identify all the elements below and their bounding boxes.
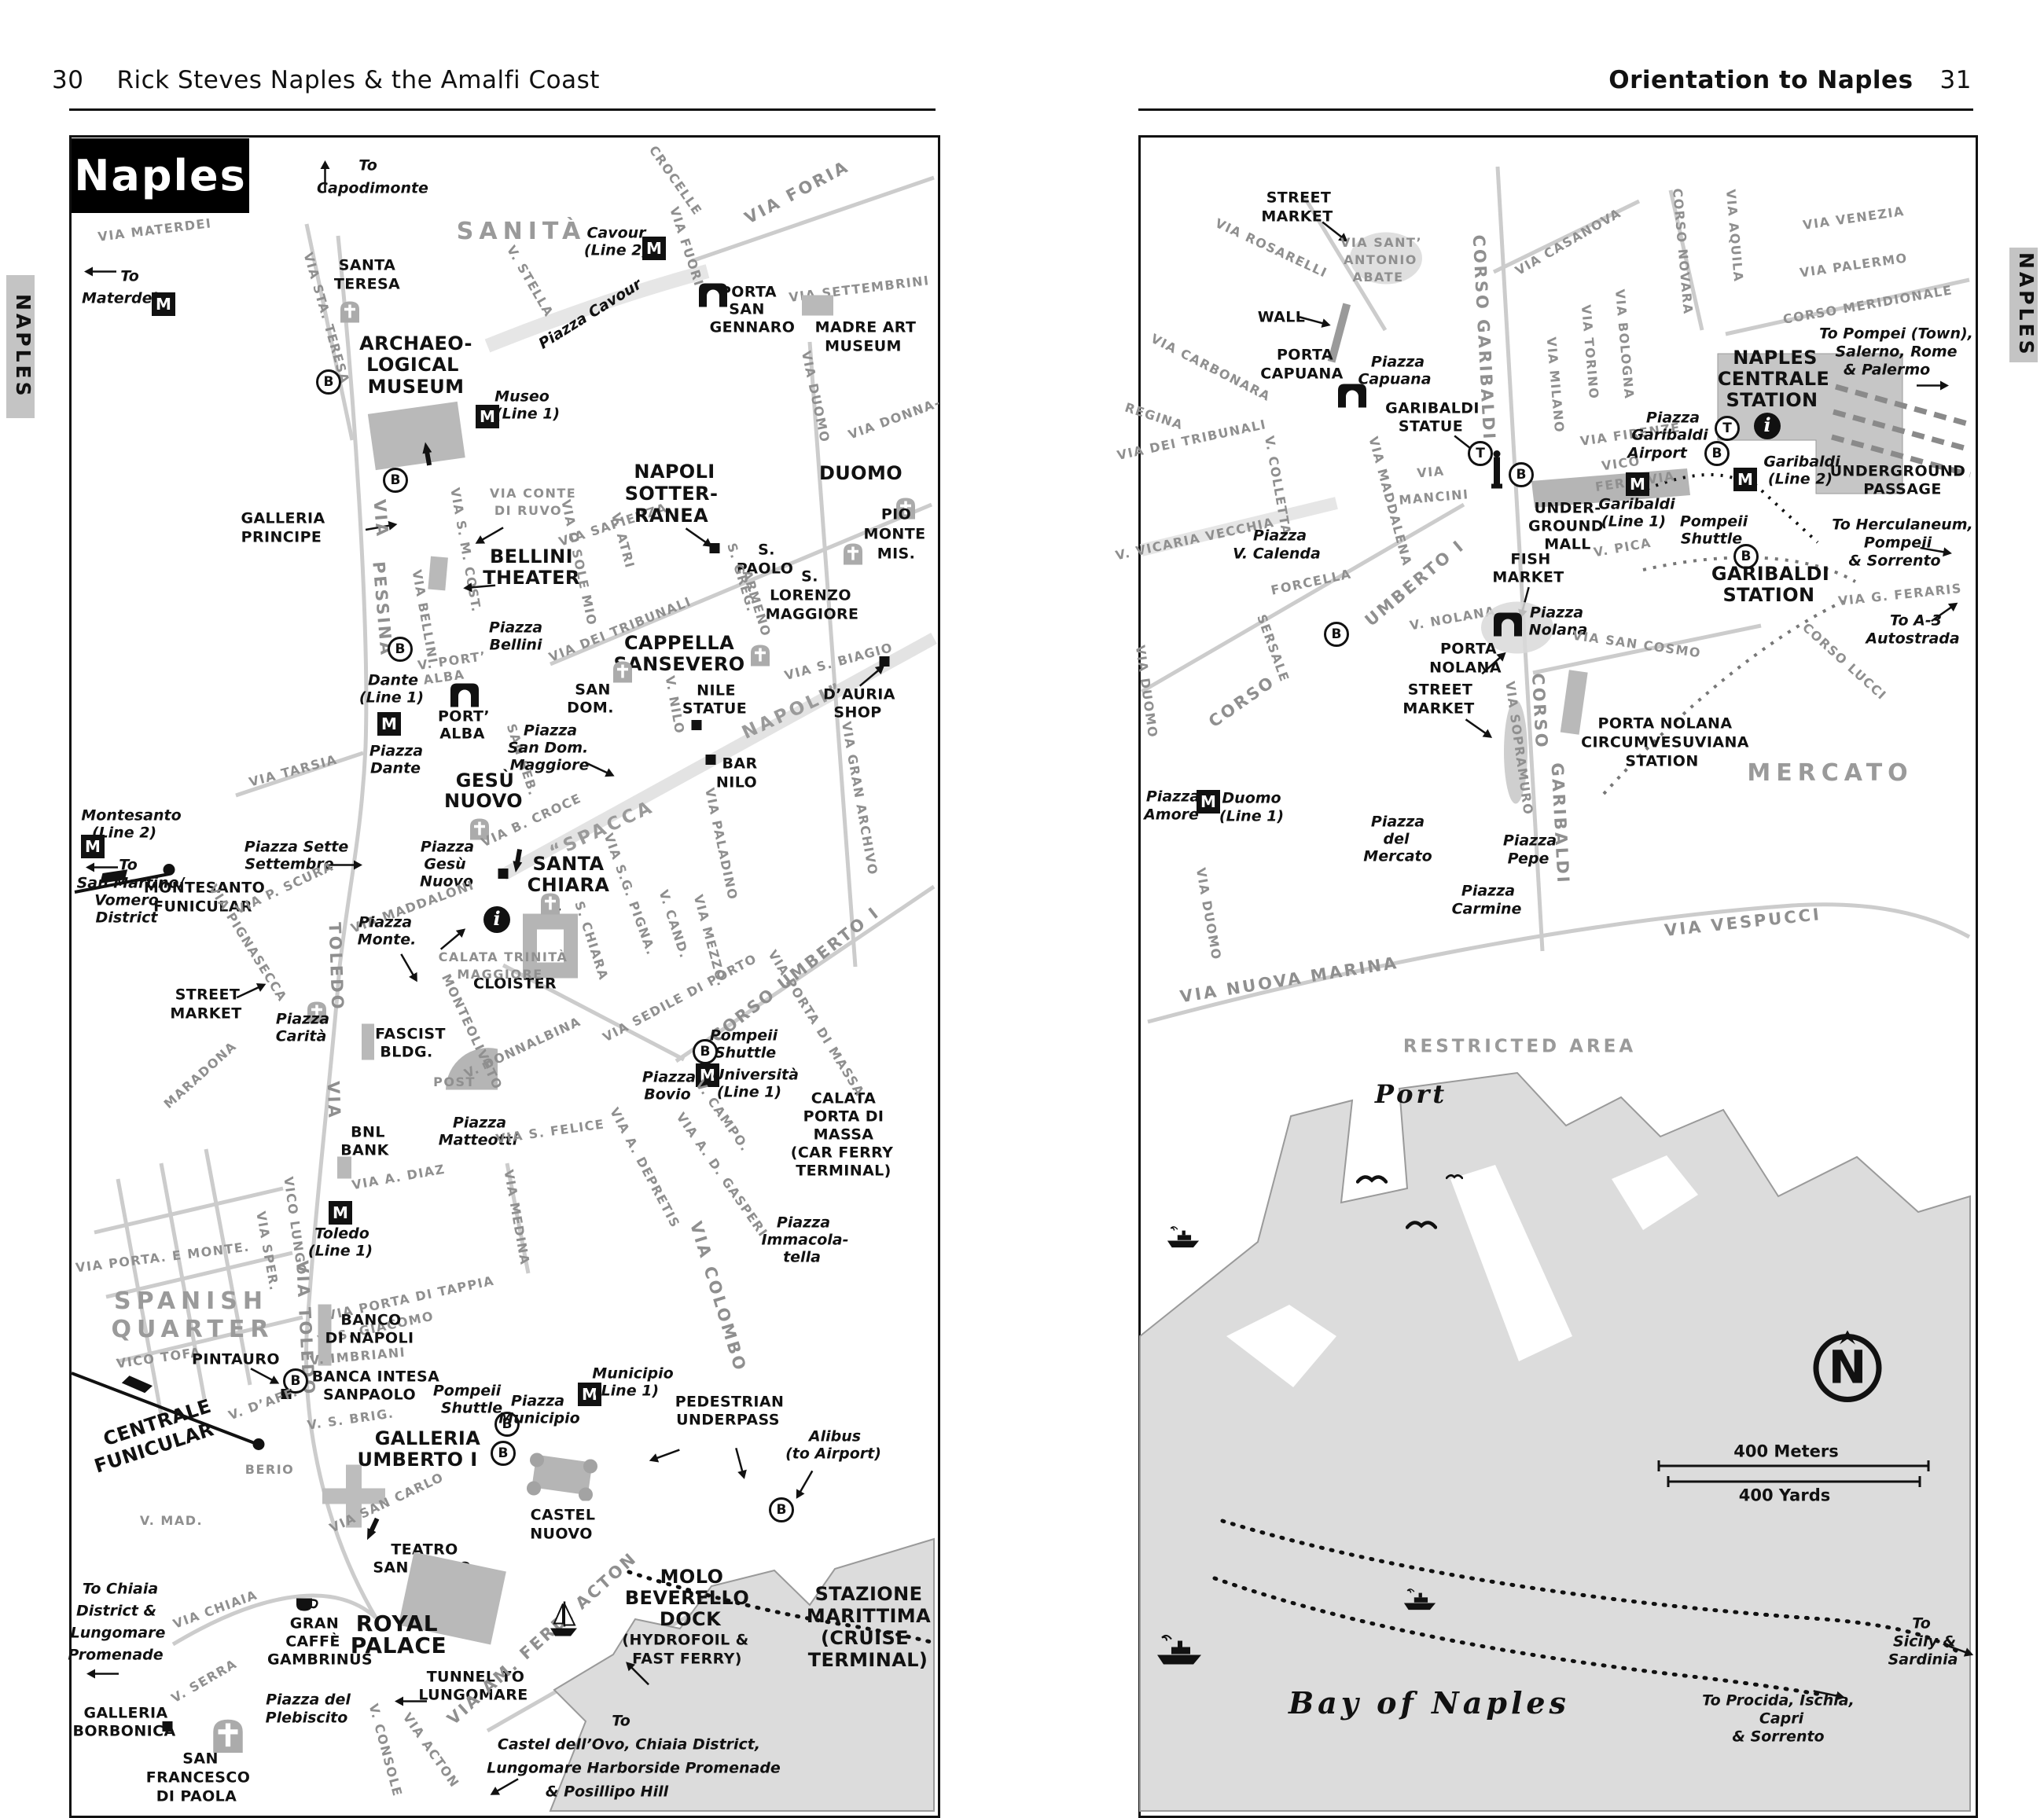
map-label: To	[612, 1714, 630, 1729]
right-naples-tab: NAPLES	[2009, 248, 2038, 362]
map-label: PORTA	[1277, 348, 1333, 363]
landmark-marker-icon	[163, 1721, 173, 1734]
map-label: QUARTER	[112, 1318, 274, 1342]
map-label: DI NAPOLI	[325, 1331, 414, 1346]
map-label: SANTA	[532, 854, 604, 873]
map-label: DI PAOLA	[156, 1790, 237, 1805]
direction-arrow-icon	[728, 1445, 750, 1482]
bus-stop-icon: B	[388, 637, 413, 662]
bus-stop-icon: B	[1704, 441, 1730, 466]
map-label: 400 Yards	[1739, 1488, 1830, 1504]
map-label: UNDERGROUND	[1830, 465, 1966, 479]
map-label: BLDG.	[380, 1045, 432, 1060]
map-label: FASCIST	[375, 1027, 446, 1042]
map-label: VIA	[325, 1081, 343, 1120]
direction-arrow-icon	[580, 757, 617, 784]
map-label: CAPPELLA	[624, 634, 734, 652]
map-label: VIA S.G. PIGNA.	[601, 832, 657, 957]
map-label: Piazza	[1371, 815, 1425, 830]
map-label: VIA GRAN ARCHIVO	[840, 721, 879, 876]
map-label: S.	[758, 543, 775, 558]
map-label: VIA ROSARELLI	[1213, 217, 1329, 280]
map-label: STATUE	[682, 702, 747, 717]
map-label: GRAN	[290, 1617, 339, 1632]
bus-stop-icon: B	[693, 1039, 718, 1064]
map-label: VIA VESPUCCI	[1664, 906, 1822, 939]
bus-stop-icon: B	[769, 1497, 794, 1522]
map-label: Piazza	[453, 1116, 506, 1131]
direction-arrow-icon	[394, 950, 423, 987]
map-label: Piazza	[369, 744, 423, 759]
city-gate-icon	[450, 684, 479, 710]
map-label: THEATER	[483, 568, 580, 587]
map-label: VIA CARBONARA	[1149, 332, 1272, 404]
building-footprint	[337, 1157, 351, 1181]
map-label: BNL	[351, 1126, 385, 1140]
map-label: (Line 1)	[308, 1244, 373, 1259]
map-labels-layer: ToCapodimonteSANITÀVIA MATERDEIToMaterde…	[0, 0, 2044, 1816]
map-label: ABATE	[1352, 271, 1403, 284]
map-label: VIA DUOMO	[1194, 867, 1222, 961]
metro-icon: M	[642, 237, 666, 260]
bus-stop-icon: B	[1509, 462, 1534, 487]
map-label: SOTTER-	[625, 484, 719, 503]
map-label: Autostrada	[1866, 632, 1959, 647]
map-label: Shuttle	[715, 1046, 776, 1061]
map-label: MAGGIORE	[766, 608, 859, 623]
map-label: Immacola-	[761, 1233, 848, 1248]
map-label: GENNARO	[710, 321, 796, 336]
map-label: MANCINI	[1399, 488, 1469, 507]
map-label: Piazza	[1646, 411, 1700, 426]
church-icon	[612, 659, 633, 686]
map-label: VIA MILANO	[1545, 336, 1566, 434]
map-label: & Sorrento	[1732, 1730, 1824, 1745]
map-label: District &	[76, 1604, 156, 1619]
map-label: MALL	[1544, 538, 1590, 553]
map-label: VIA DUOMO	[800, 350, 831, 444]
map-label: REGINA	[1123, 401, 1185, 432]
map-label: 400 Meters	[1733, 1444, 1838, 1460]
pointer-arrow-icon	[505, 847, 528, 874]
map-label: (to Airport)	[785, 1447, 881, 1462]
map-label: MIS.	[877, 547, 915, 562]
map-label: VIA SPER.	[254, 1210, 281, 1292]
map-label: Garibaldi	[1763, 455, 1840, 470]
map-label: VIA NUOVA MARINA	[1179, 955, 1400, 1006]
map-label: VIA TORINO	[1579, 304, 1600, 400]
map-label: UNDER-	[1535, 501, 1601, 516]
map-label: Lungomare	[71, 1626, 166, 1641]
map-label: Piazza	[421, 840, 474, 855]
map-label: Piazza	[1146, 790, 1200, 805]
map-label: CAFFÈ	[285, 1635, 340, 1650]
map-label: VIA A. DIAZ	[351, 1163, 446, 1192]
map-label: STATUE	[1399, 420, 1463, 435]
map-label: Piazza	[358, 916, 412, 931]
map-label: FORCELLA	[1270, 567, 1352, 597]
map-label: SANPAOLO	[323, 1388, 416, 1403]
map-label: BERIO	[245, 1464, 295, 1476]
map-label: VIA TARSIA	[248, 753, 339, 788]
map-label: NAPOLI	[634, 462, 715, 481]
map-label: CORSO NOVARA	[1671, 188, 1694, 315]
metro-icon: M	[1197, 790, 1220, 814]
direction-arrow-icon	[1296, 311, 1333, 333]
map-label: LORENZO	[770, 589, 851, 604]
bus-stop-icon: B	[383, 468, 408, 493]
map-label: (Line 2)	[584, 244, 649, 259]
map-label: Materdei	[82, 292, 157, 307]
direction-arrow-icon	[85, 860, 119, 873]
map-label: MARKET	[1492, 571, 1564, 586]
map-label: District	[96, 911, 158, 926]
map-label: Pompeii	[1680, 515, 1748, 530]
map-label: Lungomare Harborside Promenade	[487, 1761, 781, 1776]
map-label: V. NILO	[664, 675, 686, 736]
map-label: VIA FORIA	[742, 158, 852, 227]
map-label: LOGICAL	[366, 355, 459, 374]
bus-stop-icon: B	[316, 369, 341, 395]
map-label: PASSAGE	[1863, 483, 1941, 498]
map-label: VIA VENEZIA	[1802, 205, 1905, 232]
map-label: DUOMO	[819, 464, 903, 483]
map-label: (Line 1)	[717, 1085, 781, 1100]
map-label: Piazza Cavour	[536, 277, 644, 352]
map-label: MAGGIORE	[457, 968, 542, 981]
map-label: MOLO	[660, 1567, 724, 1586]
map-label: STREET	[175, 988, 241, 1003]
map-label: Pompeii	[433, 1384, 501, 1399]
map-label: NILO	[716, 776, 757, 791]
map-label: VIA PALADINO	[703, 787, 739, 902]
info-icon: i	[483, 906, 510, 933]
map-label: V. STELLA	[505, 244, 556, 319]
map-label: Monte.	[358, 933, 417, 948]
map-label: Capodimonte	[317, 182, 428, 196]
map-label: To	[358, 159, 377, 174]
map-label: Cavour	[586, 226, 645, 241]
map-label: D’AURIA	[823, 688, 895, 703]
map-label: Carmine	[1452, 902, 1522, 917]
info-icon: i	[1754, 413, 1781, 439]
church-icon	[750, 642, 770, 670]
map-label: UMBERTO I	[357, 1450, 477, 1469]
map-label: ALBA	[439, 727, 485, 742]
map-label: NAPLES	[1733, 348, 1818, 367]
map-label: CASTEL	[531, 1508, 596, 1523]
map-label: VIA DEI TRIBUNALI	[1116, 418, 1268, 462]
map-label: (HYDROFOIL &	[622, 1633, 748, 1648]
landmark-marker-icon	[710, 543, 720, 556]
map-label: V. MAD.	[140, 1515, 203, 1527]
map-label: VIA A. D. GASPERI	[674, 1111, 770, 1240]
map-label: BORBONICA	[72, 1724, 175, 1739]
map-label: Piazza del	[266, 1693, 351, 1708]
map-label: Piazza	[777, 1216, 830, 1231]
map-label: BELLINI	[490, 547, 573, 566]
map-label: STATION	[1722, 586, 1814, 604]
ferry-icon	[1154, 1633, 1204, 1669]
map-label: Piazza	[1371, 355, 1425, 370]
map-label: TOLEDO	[326, 922, 346, 1012]
map-label: CORSO	[1206, 673, 1278, 730]
map-label: GARIBALDI	[1711, 564, 1829, 583]
map-label: MARKET	[1402, 702, 1474, 717]
map-label: ANTONIO	[1344, 254, 1417, 266]
map-label: Piazza	[524, 724, 577, 739]
map-label: VIA A. DEPRETIS	[608, 1106, 682, 1230]
map-label: VIA CASANOVA	[1513, 207, 1623, 277]
map-label: Piazza	[1503, 834, 1557, 849]
map-label: NUOVO	[444, 791, 523, 810]
map-label: NUOVO	[530, 1527, 593, 1542]
map-label: VIA S. FELICE	[495, 1118, 606, 1145]
funicular-car-icon	[116, 1371, 155, 1398]
map-label: To Herculaneum,	[1832, 518, 1972, 533]
map-label: VIA SAN COSMO	[1572, 630, 1702, 660]
map-label: RANEA	[634, 506, 708, 525]
map-label: MUSEUM	[825, 340, 902, 354]
map-label: (CRUISE	[821, 1629, 909, 1647]
castel-nuovo-icon	[524, 1449, 600, 1504]
map-label: SANTA	[339, 259, 395, 274]
direction-arrow-icon	[461, 578, 497, 594]
map-label: Shuttle	[441, 1401, 502, 1416]
compass-north-icon: N	[1810, 1331, 1885, 1408]
map-label: Municipio	[498, 1412, 579, 1427]
map-label: Capuana	[1358, 373, 1431, 387]
direction-arrow-icon	[394, 1694, 428, 1707]
map-label: Carità	[276, 1030, 327, 1045]
landmark-marker-icon	[692, 720, 702, 733]
map-label: SAN	[182, 1752, 219, 1767]
map-label: To	[119, 858, 138, 873]
map-label: Airport	[1627, 446, 1687, 461]
boat-icon	[1402, 1587, 1438, 1614]
map-label: SANITÀ	[457, 220, 586, 244]
map-label: PORTA	[720, 285, 777, 300]
map-label: GALLERIA	[241, 512, 325, 527]
direction-arrow-icon	[83, 264, 118, 277]
map-label: UNDERPASS	[676, 1413, 780, 1428]
map-label: BAR	[722, 757, 757, 772]
map-title-box: Naples	[72, 138, 249, 213]
map-label: CORSO MERIDIONALE	[1782, 284, 1954, 326]
map-label: NILE	[697, 684, 736, 699]
map-label: CORSO	[1529, 673, 1550, 750]
map-label: VIA G. FERARIS	[1837, 582, 1962, 608]
map-label: STATION	[1726, 391, 1818, 410]
map-label: Dante	[370, 762, 421, 777]
metro-icon: M	[476, 405, 499, 428]
seagull-icon	[1356, 1172, 1388, 1187]
map-label: (CAR FERRY	[791, 1146, 894, 1161]
building-footprint	[1560, 670, 1587, 737]
map-label: To Chiaia	[83, 1582, 158, 1597]
map-label: VIA CHIAIA	[171, 1588, 259, 1631]
map-label: MASSA	[814, 1128, 874, 1143]
map-label: Sardinia	[1888, 1653, 1958, 1668]
map-label: (Line 1)	[1219, 810, 1284, 825]
map-label: V. CAND.	[656, 888, 690, 960]
map-label: VIA SANT’	[1340, 237, 1422, 249]
map-label: SPANISH	[114, 1290, 268, 1313]
map-label: Promenade	[68, 1648, 163, 1663]
church-icon	[340, 299, 360, 326]
church-icon	[540, 891, 561, 918]
city-gate-icon	[1338, 384, 1366, 410]
map-label: (Line 1)	[359, 691, 424, 706]
metro-icon: M	[329, 1201, 352, 1225]
map-label: Salerno, Rome	[1835, 345, 1957, 360]
map-label: (Line 1)	[594, 1384, 659, 1399]
map-label: Castel dell’Ovo, Chiaia District,	[498, 1738, 760, 1753]
map-label: Piazza Sette	[244, 840, 348, 855]
map-label: PINTAURO	[192, 1353, 280, 1368]
map-label: VIA	[1417, 465, 1445, 479]
map-label: DOM.	[567, 701, 614, 716]
map-label: V. CONSOLE	[366, 1702, 403, 1798]
map-label: San Dom.	[508, 741, 589, 756]
map-label: Montesanto	[81, 809, 181, 824]
map-label: Pepe	[1508, 852, 1550, 867]
map-label: (Line 1)	[495, 407, 560, 422]
city-gate-icon	[1494, 613, 1522, 639]
map-label: Plebiscito	[266, 1711, 348, 1726]
church-icon	[843, 541, 863, 568]
map-label: Amore	[1144, 808, 1199, 823]
map-label: SAN	[729, 303, 765, 318]
map-label: VIA	[370, 499, 390, 539]
map-title: Naples	[74, 151, 247, 200]
map-label: MARKET	[170, 1007, 241, 1022]
map-label: Dante	[368, 674, 418, 689]
map-label: Piazza	[1530, 606, 1583, 621]
map-label: FAST FERRY)	[632, 1652, 742, 1667]
map-label: Piazza	[642, 1071, 696, 1085]
map-label: Bellini	[490, 638, 542, 653]
map-label: GALLERIA	[83, 1706, 167, 1721]
map-label: MERCATO	[1747, 762, 1913, 785]
map-label: & Palermo	[1844, 363, 1930, 378]
map-label: Piazza	[276, 1012, 329, 1027]
map-label: MONTE	[864, 527, 926, 542]
map-label: PEDESTRIAN	[675, 1395, 785, 1410]
building-footprint	[362, 1024, 374, 1063]
metro-icon: M	[1626, 472, 1649, 496]
map-label: Bovio	[644, 1088, 691, 1103]
landmark-marker-icon	[498, 869, 509, 881]
map-label: Municipio	[592, 1367, 673, 1382]
map-label: MARADONA	[162, 1040, 239, 1111]
building-footprint	[428, 556, 448, 593]
direction-arrow-icon	[471, 520, 508, 549]
map-label: VIA BOLOGNA	[1613, 288, 1635, 400]
garibaldi-statue-icon	[1491, 450, 1502, 494]
map-label: Museo	[494, 390, 550, 405]
map-label: Piazza	[489, 621, 542, 636]
map-label: GESÙ	[456, 771, 514, 790]
map-label: V. D’AFF.	[227, 1386, 300, 1423]
map-label: TERESA	[334, 277, 400, 292]
map-label: To	[120, 270, 139, 285]
map-label: VIA PORTA. E MONTE.	[75, 1240, 250, 1274]
map-label: Pompeii	[710, 1029, 778, 1044]
map-label: CAPUANA	[1260, 367, 1344, 382]
map-label: Toledo	[314, 1227, 369, 1242]
seagull-icon	[1406, 1218, 1437, 1232]
direction-arrow-icon	[86, 1666, 120, 1680]
map-label: VIA PALERMO	[1799, 252, 1908, 279]
map-label: VIA MEDINA	[502, 1169, 531, 1266]
map-label: VIA MATERDEI	[97, 217, 213, 244]
map-label: SANSEVERO	[613, 655, 744, 674]
map-label: VICO TOFA	[116, 1346, 202, 1371]
map-label: STATION	[1625, 755, 1698, 769]
map-label: PRINCIPE	[241, 531, 322, 545]
map-label: STAZIONE	[815, 1585, 923, 1603]
map-label: del	[1384, 832, 1410, 847]
map-label: Alibus	[809, 1430, 861, 1445]
map-label: CALATA TRINITÀ	[439, 951, 568, 964]
map-label: CENTRALE	[1718, 369, 1829, 388]
map-label: RESTRICTED AREA	[1403, 1038, 1636, 1056]
bus-stop-icon: B	[491, 1441, 516, 1466]
map-label: CIRCUMVESUVIANA	[1581, 736, 1749, 751]
map-label: BANCO	[340, 1313, 401, 1328]
map-label: BANCA INTESA	[312, 1370, 439, 1385]
map-label: Piazza	[1253, 529, 1307, 544]
map-label: VIA DONNA-	[847, 396, 943, 441]
map-label: VIA S. M. COST.	[448, 487, 483, 613]
sailboat-icon	[547, 1600, 579, 1642]
funicular-terminus-icon	[253, 1438, 265, 1453]
map-label: MADRE ART	[815, 321, 917, 336]
map-label: DOCK	[660, 1610, 721, 1629]
map-label: PORTA NOLANA	[1598, 717, 1733, 732]
boat-icon	[1165, 1225, 1201, 1252]
map-label: PIO	[881, 508, 911, 523]
map-label: V. PICA	[1593, 537, 1652, 560]
map-label: VICO LUNGO	[281, 1176, 308, 1276]
map-label: SAN	[575, 683, 611, 698]
seagull-icon	[1446, 1170, 1463, 1182]
map-label: STREET	[1408, 683, 1473, 698]
map-label: SERSALE	[1255, 613, 1291, 684]
map-label: STREET	[1266, 191, 1332, 206]
map-label: DI RUVO	[494, 505, 562, 517]
map-label: PORTA DI	[803, 1110, 884, 1125]
map-label: GARIBALDI	[1385, 402, 1480, 417]
map-label: Capri	[1759, 1712, 1803, 1727]
map-label: Vomero	[94, 894, 158, 909]
map-label: Garibaldi	[1631, 428, 1708, 443]
map-label: GROUND	[1528, 520, 1604, 534]
map-label: Piazza	[511, 1394, 564, 1409]
map-label: S.	[801, 570, 818, 585]
map-label: BEVERELLO	[625, 1588, 749, 1607]
map-label: Bay of Naples	[1289, 1688, 1570, 1718]
building-footprint	[368, 402, 465, 472]
map-label: To Pompei (Town),	[1819, 327, 1973, 342]
tram-stop-icon: T	[1715, 416, 1740, 441]
map-label: CALATA	[811, 1092, 877, 1107]
map-label: (Line 1)	[1601, 515, 1666, 530]
map-label: Duomo	[1222, 791, 1281, 806]
map-label: SHOP	[833, 706, 881, 721]
map-label: GARIBALDI	[1548, 762, 1571, 885]
